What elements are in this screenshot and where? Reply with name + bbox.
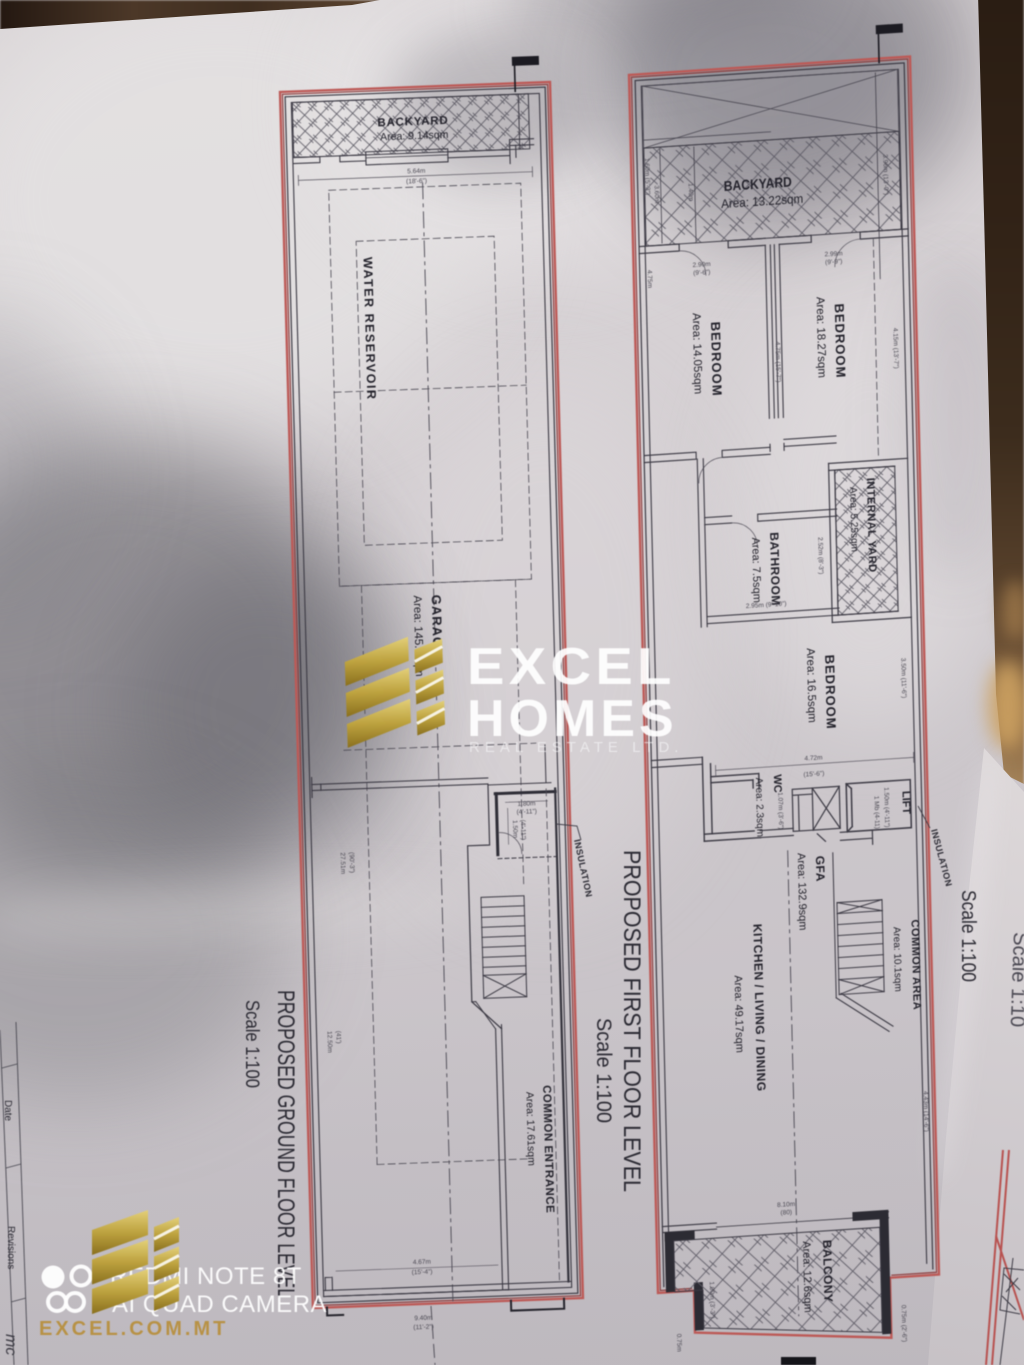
svg-text:COMMON AREA: COMMON AREA xyxy=(909,919,923,1010)
svg-text:INSULATION: INSULATION xyxy=(929,828,954,888)
svg-text:mc: mc xyxy=(2,1334,19,1355)
svg-text:3.50m (11'-6"): 3.50m (11'-6") xyxy=(899,658,907,699)
svg-text:EXCEL.COM.MT: EXCEL.COM.MT xyxy=(39,1318,228,1340)
svg-text:2.95m (9'-10"): 2.95m (9'-10") xyxy=(746,600,787,610)
svg-text:8.10m: 8.10m xyxy=(777,1201,795,1209)
svg-text:4.75m: 4.75m xyxy=(646,270,653,289)
svg-text:(18'-6"): (18'-6") xyxy=(406,178,427,186)
svg-text:Area: 16.5sqm: Area: 16.5sqm xyxy=(804,648,818,723)
svg-text:Area: 5.25sqm: Area: 5.25sqm xyxy=(847,487,860,553)
svg-text:0.75m (2'-6"): 0.75m (2'-6") xyxy=(900,1305,908,1343)
svg-text:Scale 1:10: Scale 1:10 xyxy=(1006,932,1024,1028)
svg-text:Area: 10.1sqm: Area: 10.1sqm xyxy=(891,926,904,992)
svg-text:Scale 1:100: Scale 1:100 xyxy=(241,1000,262,1088)
svg-text:12.50m: 12.50m xyxy=(325,1031,333,1053)
svg-text:Area: 49.17sqm: Area: 49.17sqm xyxy=(732,975,746,1053)
svg-text:PROPOSED FIRST FLOOR LEVEL: PROPOSED FIRST FLOOR LEVEL xyxy=(618,850,645,1192)
svg-text:INSULATION: INSULATION xyxy=(572,838,594,898)
svg-text:1.50m: 1.50m xyxy=(511,820,518,838)
svg-text:LIFT: LIFT xyxy=(899,791,912,815)
svg-text:EXCEL: EXCEL xyxy=(467,638,676,696)
svg-text:1.07m (3'-6"): 1.07m (3'-6") xyxy=(776,792,784,830)
svg-text:Revisions: Revisions xyxy=(5,1226,16,1269)
svg-text:5.64m: 5.64m xyxy=(407,168,425,176)
svg-text:COMMON ENTRANCE: COMMON ENTRANCE xyxy=(540,1085,555,1214)
svg-text:1.50m (4'-11"): 1.50m (4'-11") xyxy=(882,787,890,828)
svg-text:Date: Date xyxy=(2,1100,13,1122)
svg-text:4.67m: 4.67m xyxy=(413,1259,431,1267)
svg-text:1.60m (5'-3"): 1.60m (5'-3") xyxy=(643,158,651,196)
svg-text:(4'-11"): (4'-11") xyxy=(519,820,527,841)
svg-text:BEDROOM: BEDROOM xyxy=(708,321,725,397)
svg-text:BATHROOM: BATHROOM xyxy=(767,532,783,607)
svg-text:Area: 18.27sqm: Area: 18.27sqm xyxy=(814,296,828,378)
svg-text:Area: 2.3sqm: Area: 2.3sqm xyxy=(753,777,765,837)
svg-text:(9'-9"): (9'-9") xyxy=(825,258,842,266)
svg-text:BEDROOM: BEDROOM xyxy=(822,654,839,730)
svg-text:WATER RESERVOIR: WATER RESERVOIR xyxy=(361,257,379,401)
svg-text:4.75m (15'-7"): 4.75m (15'-7") xyxy=(774,341,782,382)
svg-text:REAL ESTATE LTD.: REAL ESTATE LTD. xyxy=(469,739,683,756)
svg-text:9.40m: 9.40m xyxy=(414,1315,432,1323)
svg-text:BALCONY: BALCONY xyxy=(820,1239,835,1303)
svg-text:(41'): (41') xyxy=(334,1031,341,1044)
svg-text:3.96m (13'-0"): 3.96m (13'-0") xyxy=(881,154,889,195)
svg-text:Area: 12.6sqm: Area: 12.6sqm xyxy=(800,1241,814,1313)
svg-text:Scale 1:100: Scale 1:100 xyxy=(957,890,979,982)
svg-text:Area: 17.61sqm: Area: 17.61sqm xyxy=(523,1092,537,1167)
svg-text:Area: 7.5sqm: Area: 7.5sqm xyxy=(749,537,763,603)
svg-text:(9'-6"): (9'-6") xyxy=(693,269,710,277)
svg-text:Area: 9.14sqm: Area: 9.14sqm xyxy=(380,129,449,144)
svg-text:4.72m: 4.72m xyxy=(804,754,822,762)
svg-text:1.00m (3'-3"): 1.00m (3'-3") xyxy=(708,1281,716,1319)
svg-text:KITCHEN / LIVING / DINING: KITCHEN / LIVING / DINING xyxy=(750,923,768,1092)
svg-text:Area: 14.05sqm: Area: 14.05sqm xyxy=(690,313,704,395)
svg-text:1 Mb (4-11): 1 Mb (4-11) xyxy=(873,796,881,830)
svg-text:2.90m: 2.90m xyxy=(693,261,711,269)
svg-text:(4'-11"): (4'-11") xyxy=(516,808,537,816)
svg-text:(15'-6"): (15'-6") xyxy=(803,770,824,778)
svg-text:Scale 1:100: Scale 1:100 xyxy=(592,1018,615,1123)
svg-text:3.60m: 3.60m xyxy=(653,185,660,204)
svg-text:BEDROOM: BEDROOM xyxy=(832,303,849,379)
svg-text:GFA: GFA xyxy=(813,855,828,882)
svg-text:(11'-2"): (11'-2") xyxy=(413,1324,434,1332)
svg-text:PROPOSED GROUND FLOOR LEVEL: PROPOSED GROUND FLOOR LEVEL xyxy=(272,990,299,1298)
svg-text:1.40m: 1.40m xyxy=(687,183,694,202)
svg-text:Area: 132.9sqm: Area: 132.9sqm xyxy=(795,853,809,931)
svg-text:(90'-3"): (90'-3") xyxy=(348,852,356,873)
svg-text:27.51m: 27.51m xyxy=(339,852,347,874)
svg-text:4.15m (13'-7"): 4.15m (13'-7") xyxy=(891,328,899,369)
svg-text:0.75m: 0.75m xyxy=(675,1333,682,1352)
svg-text:4.43m (14'-6"): 4.43m (14'-6") xyxy=(922,1091,930,1132)
svg-text:(80): (80) xyxy=(780,1209,792,1217)
svg-text:2.99m: 2.99m xyxy=(824,250,842,258)
svg-text:INTERNAL YARD: INTERNAL YARD xyxy=(864,477,878,573)
svg-text:2.52m (8'-3"): 2.52m (8'-3") xyxy=(816,537,824,575)
svg-text:WC: WC xyxy=(771,774,783,793)
svg-text:(15'-4"): (15'-4") xyxy=(412,1269,433,1277)
